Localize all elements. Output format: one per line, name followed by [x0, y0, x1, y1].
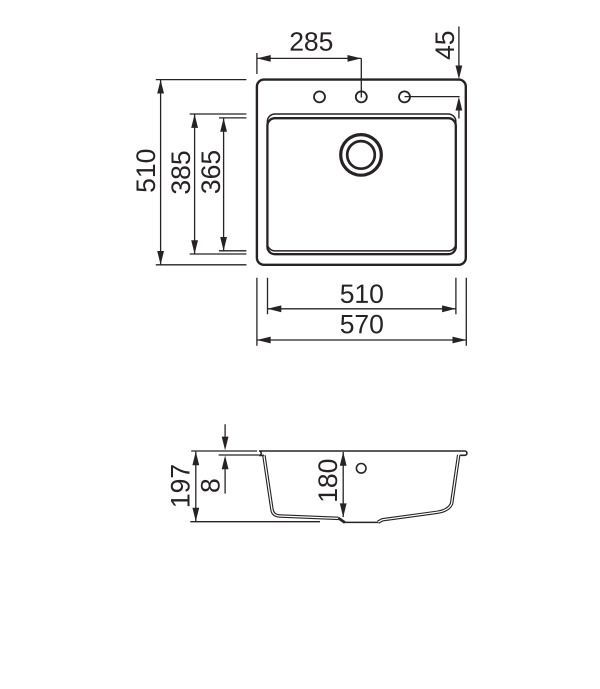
- svg-text:385: 385: [166, 150, 196, 194]
- svg-text:510: 510: [131, 149, 161, 193]
- svg-text:285: 285: [289, 27, 333, 57]
- svg-text:180: 180: [313, 459, 343, 503]
- svg-text:8: 8: [196, 478, 226, 493]
- svg-text:365: 365: [196, 150, 226, 194]
- svg-text:570: 570: [340, 309, 384, 339]
- svg-text:45: 45: [430, 30, 460, 59]
- svg-text:510: 510: [340, 279, 384, 309]
- svg-text:197: 197: [166, 464, 196, 508]
